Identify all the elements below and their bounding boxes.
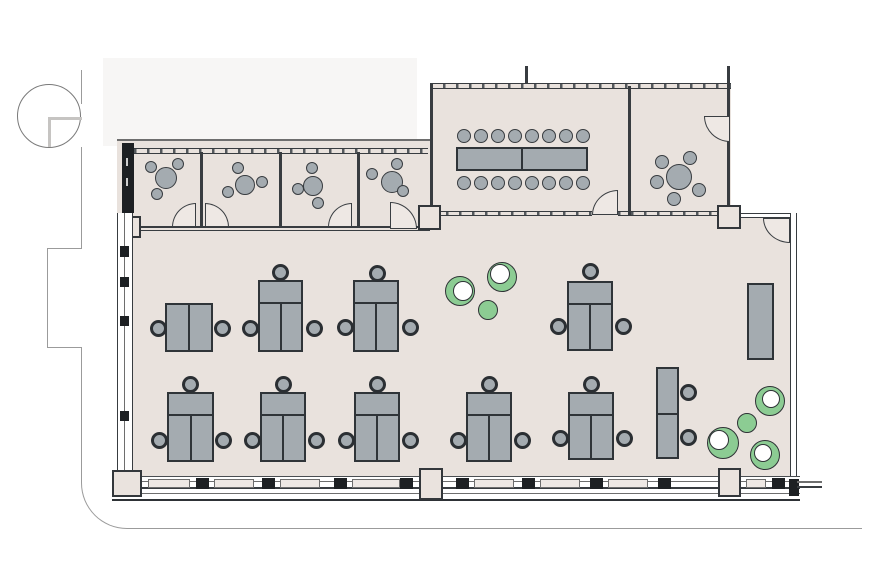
workstation-desk xyxy=(466,392,512,462)
desk-divider xyxy=(488,416,490,460)
floor-plan xyxy=(0,0,872,561)
conference-chair xyxy=(491,176,505,190)
desk-chair xyxy=(450,432,467,449)
desk-chair xyxy=(552,430,569,447)
conference-chair xyxy=(576,129,590,143)
conference-chair xyxy=(474,129,488,143)
plant xyxy=(755,386,785,416)
desk-chair xyxy=(680,384,697,401)
workstation-desk xyxy=(260,392,306,462)
desk-chair xyxy=(242,320,259,337)
desk-chair xyxy=(182,376,199,393)
chair xyxy=(683,151,697,165)
desk-divider xyxy=(375,304,377,350)
conference-table xyxy=(456,147,588,171)
desk-chair xyxy=(582,263,599,280)
round-table xyxy=(303,176,323,196)
workstation-desk xyxy=(167,392,214,462)
desk-chair xyxy=(244,432,261,449)
workstation-desk xyxy=(567,281,613,351)
desk-chair xyxy=(402,432,419,449)
plant xyxy=(445,276,475,306)
round-table xyxy=(666,164,692,190)
chair xyxy=(292,183,304,195)
conference-chair xyxy=(559,176,573,190)
desk-chair xyxy=(306,320,323,337)
conference-chair xyxy=(559,129,573,143)
conference-chair xyxy=(576,176,590,190)
conference-chair xyxy=(508,129,522,143)
desk-chair xyxy=(369,265,386,282)
plant-inner xyxy=(490,264,510,284)
chair xyxy=(306,162,318,174)
cabinet xyxy=(747,283,774,360)
desk-divider xyxy=(190,416,192,460)
plant-inner xyxy=(709,430,729,450)
desk-divider xyxy=(280,304,282,350)
desk-divider xyxy=(589,305,591,349)
desk-chair xyxy=(615,318,632,335)
chair xyxy=(397,185,409,197)
desk-chair xyxy=(481,376,498,393)
desk-chair xyxy=(616,430,633,447)
plant-inner xyxy=(762,390,780,408)
round-table xyxy=(235,175,255,195)
chair xyxy=(692,183,706,197)
plant xyxy=(478,300,498,320)
desk-divider xyxy=(658,413,677,415)
workstation-desk xyxy=(353,280,399,352)
workstation-desk xyxy=(354,392,400,462)
desk-divider xyxy=(188,305,190,350)
desk-divider xyxy=(376,416,378,460)
desk-chair xyxy=(550,318,567,335)
desk-divider xyxy=(282,416,284,460)
desk-chair xyxy=(214,320,231,337)
conference-chair xyxy=(525,176,539,190)
chair xyxy=(222,186,234,198)
desk-chair xyxy=(151,432,168,449)
desk-chair xyxy=(338,432,355,449)
chair xyxy=(151,188,163,200)
desk-chair xyxy=(680,429,697,446)
conference-chair xyxy=(474,176,488,190)
conference-chair xyxy=(457,129,471,143)
chair xyxy=(312,197,324,209)
workstation-desk xyxy=(568,392,614,460)
plant xyxy=(707,427,739,459)
workstation-desk xyxy=(258,280,303,352)
chair xyxy=(366,168,378,180)
furniture-layer xyxy=(0,0,872,561)
desk-chair xyxy=(272,264,289,281)
conference-chair xyxy=(491,129,505,143)
desk-chair xyxy=(402,319,419,336)
plant xyxy=(737,413,757,433)
chair xyxy=(145,161,157,173)
chair xyxy=(650,175,664,189)
desk-chair xyxy=(514,432,531,449)
workstation-desk xyxy=(165,303,213,352)
chair xyxy=(256,176,268,188)
desk-chair xyxy=(369,376,386,393)
desk-divider xyxy=(590,416,592,458)
table-divider xyxy=(521,149,523,169)
chair xyxy=(391,158,403,170)
desk-chair xyxy=(275,376,292,393)
plant xyxy=(750,440,780,470)
chair xyxy=(232,162,244,174)
conference-chair xyxy=(508,176,522,190)
desk-chair xyxy=(583,376,600,393)
plant-inner xyxy=(754,444,772,462)
conference-chair xyxy=(457,176,471,190)
desk-chair xyxy=(215,432,232,449)
chair xyxy=(172,158,184,170)
chair xyxy=(655,155,669,169)
desk-chair xyxy=(337,319,354,336)
round-table xyxy=(155,167,177,189)
conference-chair xyxy=(542,176,556,190)
chair xyxy=(667,192,681,206)
plant-inner xyxy=(453,281,473,301)
conference-chair xyxy=(542,129,556,143)
plant xyxy=(487,262,517,292)
desk-chair xyxy=(150,320,167,337)
workstation-desk xyxy=(656,367,679,459)
desk-chair xyxy=(308,432,325,449)
conference-chair xyxy=(525,129,539,143)
